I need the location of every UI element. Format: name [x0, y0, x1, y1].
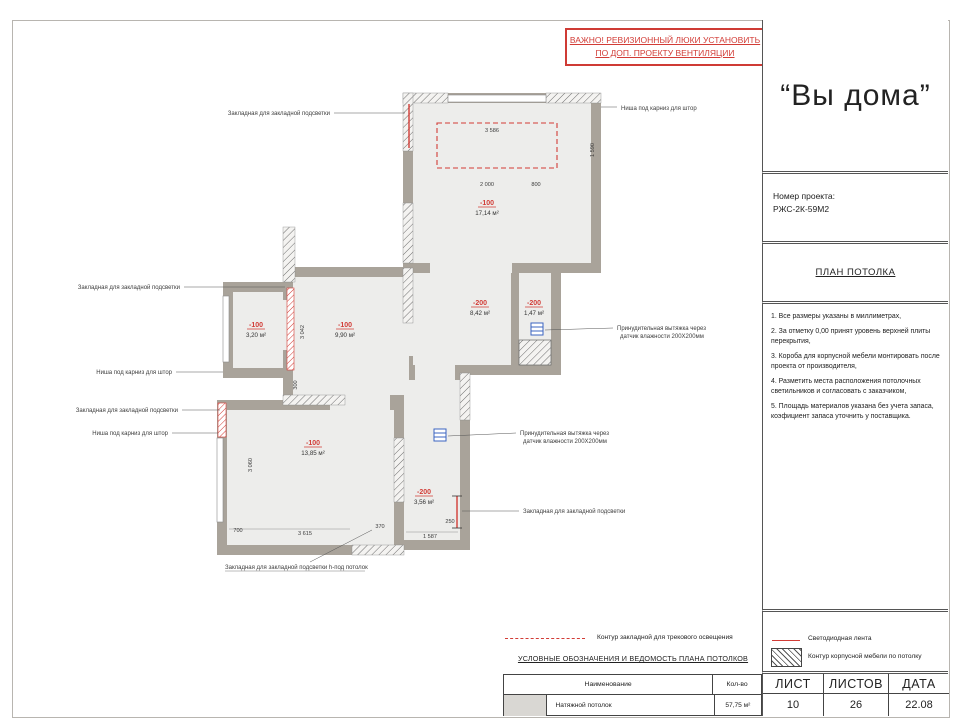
note-3: 3. Короба для корпусной мебели монтирова…	[771, 352, 940, 373]
led-legend-line	[772, 640, 800, 641]
led-niche-living	[218, 403, 226, 437]
legend-section-title: УСЛОВНЫЕ ОБОЗНАЧЕНИЯ И ВЕДОМОСТЬ ПЛАНА П…	[505, 654, 761, 663]
svg-text:9,90 м²: 9,90 м²	[335, 332, 355, 339]
dim-label: 3 615	[298, 531, 312, 537]
note-4: 4. Разметить места расположения потолочн…	[771, 377, 940, 398]
date-value: 22.08	[888, 693, 949, 716]
dim-label: 250	[445, 519, 454, 525]
svg-text:3,56 м²: 3,56 м²	[414, 499, 434, 506]
track-legend-label: Контур закладной для трекового освещения	[597, 634, 733, 641]
dim-label: 1 587	[423, 534, 437, 540]
divider-wall	[511, 273, 519, 365]
spec-row-qty: 57,75 м²	[715, 695, 761, 716]
callout-vent-bathroom: Принудительная вытяжка через датчик влаж…	[448, 431, 609, 445]
sheets-label: ЛИСТОВ	[823, 674, 888, 693]
sheets-total: 26	[823, 693, 888, 716]
svg-text:17,14 м²: 17,14 м²	[475, 210, 499, 217]
spec-sample-swatch	[504, 695, 547, 716]
svg-text:-200: -200	[473, 300, 487, 307]
dim-label: 300	[293, 380, 299, 389]
note-2: 2. За отметку 0,00 принят уровень верхне…	[771, 327, 940, 348]
callout-curtain-top: Ниша под карниз для штор	[601, 106, 697, 112]
callout-curtain-left-2: Ниша под карниз для штор	[92, 431, 218, 437]
dim-label: 1 590	[590, 143, 596, 157]
svg-text:Закладная для закладной подсве: Закладная для закладной подсветки	[523, 508, 625, 515]
dim-label: 700	[233, 528, 242, 534]
title-block-logo-section: “Вы дома”	[762, 20, 948, 174]
svg-text:Ниша под карниз для штор: Ниша под карниз для штор	[92, 431, 168, 437]
svg-text:Ниша под карниз для штор: Ниша под карниз для штор	[621, 106, 697, 112]
svg-text:-100: -100	[338, 322, 352, 329]
spec-row-name: Натяжной потолок	[547, 695, 714, 716]
svg-text:датчик влажности 200Х200мм: датчик влажности 200Х200мм	[620, 334, 704, 340]
logo: “Вы дома”	[780, 79, 930, 113]
curtain-niche-top	[448, 95, 546, 102]
svg-text:-200: -200	[417, 489, 431, 496]
furniture-legend-label: Контур корпусной мебели по потолку	[808, 653, 922, 660]
svg-text:датчик влажности 200Х200мм: датчик влажности 200Х200мм	[523, 439, 607, 445]
track-legend-dashed-line	[505, 638, 585, 639]
vent-icon-bathroom	[434, 429, 446, 441]
svg-text:3,20 м²: 3,20 м²	[246, 332, 266, 339]
svg-text:Принудительная вытяжка через: Принудительная вытяжка через	[520, 431, 609, 437]
spec-col-qty-header: Кол-во	[712, 675, 761, 694]
led-niche-hall	[287, 288, 294, 370]
callout-vent-kitchen: Принудительная вытяжка через датчик влаж…	[545, 326, 706, 340]
title-block-project-section: Номер проекта: РЖС-2К-59М2	[762, 174, 948, 244]
svg-text:13,85 м²: 13,85 м²	[301, 450, 325, 457]
dim-label: 3 042	[300, 325, 306, 339]
project-number-value: РЖС-2К-59М2	[773, 203, 948, 216]
vent-icon-kitchen	[531, 323, 543, 335]
dim-label: 370	[375, 524, 384, 530]
svg-text:-100: -100	[306, 440, 320, 447]
led-legend-label: Светодиодная лента	[808, 635, 872, 642]
svg-text:Ниша под карниз для штор: Ниша под карниз для штор	[96, 370, 172, 376]
svg-text:1,47 м²: 1,47 м²	[524, 310, 544, 317]
dim-label: 800	[531, 182, 540, 188]
window-left-2	[217, 438, 223, 522]
svg-text:-200: -200	[527, 300, 541, 307]
title-block-notes-section: 1. Все размеры указаны в миллиметрах, 2.…	[762, 304, 948, 612]
callout-backlight-1: Закладная для закладной подсветки	[228, 110, 405, 117]
callout-backlight-4: Закладная для закладной подсветки	[462, 508, 625, 515]
drawing-title: ПЛАН ПОТОЛКА	[816, 267, 896, 278]
note-5: 5. Площадь материалов указана без учета …	[771, 402, 940, 423]
window-left-1	[223, 296, 229, 362]
sheet-label: ЛИСТ	[763, 674, 823, 693]
note-1: 1. Все размеры указаны в миллиметрах,	[771, 312, 940, 323]
svg-text:-100: -100	[249, 322, 263, 329]
svg-text:-100: -100	[480, 200, 494, 207]
dim-label: 3 060	[248, 458, 254, 472]
svg-text:Принудительная вытяжка через: Принудительная вытяжка через	[617, 326, 706, 332]
svg-text:Закладная для закладной подсве: Закладная для закладной подсветки h-под …	[225, 564, 368, 571]
spec-col-name-header: Наименование	[504, 675, 712, 694]
date-label: ДАТА	[888, 674, 949, 693]
svg-text:8,42 м²: 8,42 м²	[470, 310, 490, 317]
sheet-number: 10	[763, 693, 823, 716]
svg-text:Закладная для закладной подсве: Закладная для закладной подсветки	[78, 284, 180, 291]
drawing-sheet: ВАЖНО! РЕВИЗИОННЫЙ ЛЮКИ УСТАНОВИТЬ ПО ДО…	[0, 0, 960, 720]
svg-text:Закладная для закладной подсве: Закладная для закладной подсветки	[76, 407, 178, 414]
spec-table: Наименование Кол-во Натяжной потолок 57,…	[503, 674, 762, 716]
spec-table-header: Наименование Кол-во	[504, 675, 761, 695]
title-block-drawing-title-section: ПЛАН ПОТОЛКА	[762, 244, 948, 304]
svg-text:Закладная для закладной подсве: Закладная для закладной подсветки	[228, 110, 330, 117]
callout-backlight-3: Закладная для закладной подсветки	[76, 407, 220, 414]
sheet-info-table: ЛИСТ ЛИСТОВ ДАТА 10 26 22.08	[762, 674, 948, 716]
furniture-legend-hatch	[771, 648, 802, 667]
callout-curtain-left-1: Ниша под карниз для штор	[96, 370, 223, 376]
table-row: Натяжной потолок 57,75 м²	[504, 695, 761, 716]
dim-label: 3 586	[485, 128, 499, 134]
dim-label: 2 000	[480, 182, 494, 188]
project-number-label: Номер проекта:	[773, 190, 948, 203]
